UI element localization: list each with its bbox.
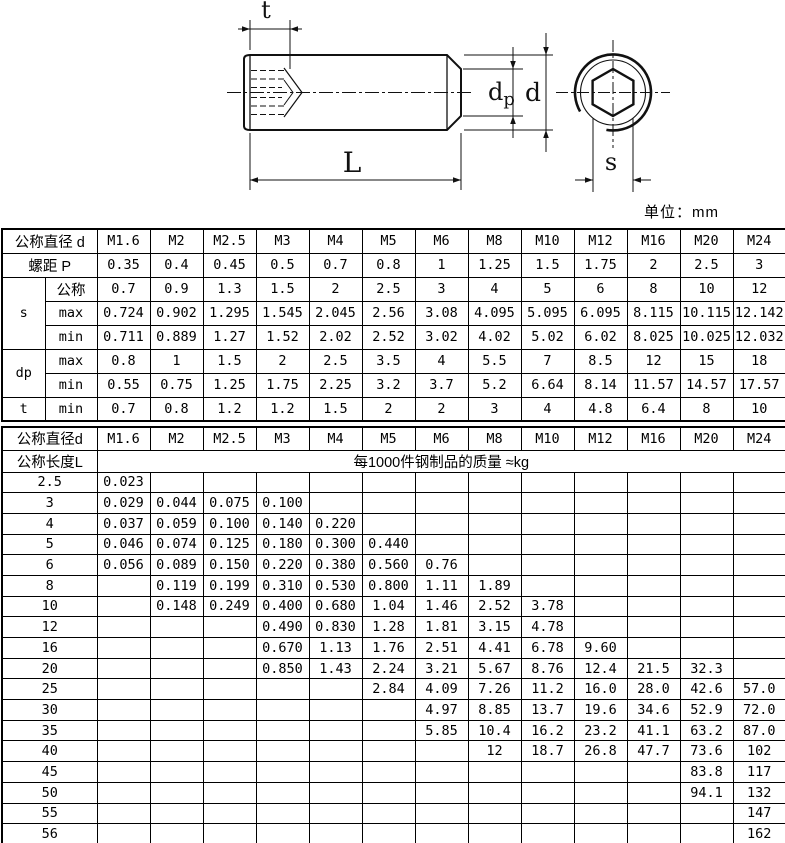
length-cell: 10 [2, 596, 97, 617]
value-cell: 8.14 [574, 373, 627, 397]
weight-cell [415, 803, 468, 824]
value-cell: 0.902 [150, 301, 203, 325]
weight-cell [680, 638, 733, 659]
sub-label: min [45, 373, 97, 397]
weight-cell [733, 638, 785, 659]
weight-cell: 0.059 [150, 513, 203, 534]
weight-cell [203, 617, 256, 638]
value-cell: 1.27 [203, 325, 256, 349]
value-cell: 1.545 [256, 301, 309, 325]
length-column-label: 公称长度L [2, 450, 97, 472]
value-cell: 1.75 [256, 373, 309, 397]
value-cell: 6.095 [574, 301, 627, 325]
weight-cell [97, 762, 150, 783]
weight-cell: 11.2 [521, 679, 574, 700]
value-cell: 2.25 [309, 373, 362, 397]
value-cell: 0.724 [97, 301, 150, 325]
weight-cell [574, 493, 627, 514]
weight-cell: 4.78 [521, 617, 574, 638]
value-cell: M5 [362, 229, 415, 253]
value-cell: 2 [627, 253, 680, 277]
dim-label-dp: dp [488, 78, 515, 110]
value-cell: M8 [468, 229, 521, 253]
value-cell: 2.5 [309, 349, 362, 373]
value-cell: 8.025 [627, 325, 680, 349]
weight-cell [97, 658, 150, 679]
spec-s-max-row: max 0.7240.9021.2951.5452.0452.563.084.0… [2, 301, 785, 325]
weight-cell [97, 782, 150, 803]
weight-cell [256, 700, 309, 721]
weight-cell: 162 [733, 824, 785, 843]
weight-cell [309, 472, 362, 493]
weight-cell [150, 700, 203, 721]
length-cell: 4 [2, 513, 97, 534]
value-cell: 4.02 [468, 325, 521, 349]
weight-cell [574, 762, 627, 783]
weight-cell: 0.300 [309, 534, 362, 555]
weight-cell [97, 700, 150, 721]
weight-cell: 2.24 [362, 658, 415, 679]
value-cell: 0.7 [97, 277, 150, 301]
value-cell: 2.52 [362, 325, 415, 349]
value-cell: 2.5 [362, 277, 415, 301]
weight-cell [627, 762, 680, 783]
weight-cell [733, 575, 785, 596]
value-cell: 8.115 [627, 301, 680, 325]
weight-cell: 26.8 [574, 741, 627, 762]
length-cell: 2.5 [2, 472, 97, 493]
dim-label-d: d [525, 78, 541, 107]
weight-cell: 1.76 [362, 638, 415, 659]
value-cell: 0.8 [97, 349, 150, 373]
value-cell: M12 [574, 229, 627, 253]
value-cell: 1.5 [203, 349, 256, 373]
weight-cell [521, 782, 574, 803]
weight-cell [309, 720, 362, 741]
value-cell: 2.56 [362, 301, 415, 325]
weight-cell [680, 803, 733, 824]
weight-row: 30.0290.0440.0750.100 [2, 493, 785, 514]
spec-s-min-row: min 0.7110.8891.271.522.022.523.024.025.… [2, 325, 785, 349]
weight-cell [574, 513, 627, 534]
value-cell: 5.2 [468, 373, 521, 397]
weight-cell [203, 679, 256, 700]
weight-cell [97, 824, 150, 843]
value-cell: 0.889 [150, 325, 203, 349]
weight-row: 56162 [2, 824, 785, 843]
weight-cell: 3.78 [521, 596, 574, 617]
weight-cell [627, 638, 680, 659]
spec-table: 公称直径 d M1.6M2M2.5M3M4M5M6M8M10M12M16M20M… [1, 228, 785, 422]
weight-cell [468, 472, 521, 493]
spec-dp-min-row: min 0.550.751.251.752.253.23.75.26.648.1… [2, 373, 785, 397]
weight-cell [627, 824, 680, 843]
weight-cell: 0.074 [150, 534, 203, 555]
weight-cell: 23.2 [574, 720, 627, 741]
weight-cell: 147 [733, 803, 785, 824]
weight-cell [680, 534, 733, 555]
weight-cell: 0.119 [150, 575, 203, 596]
weight-cell: 0.560 [362, 555, 415, 576]
value-cell: M2.5 [203, 427, 256, 450]
weight-row: 100.1480.2490.4000.6801.041.462.523.78 [2, 596, 785, 617]
weight-cell [150, 679, 203, 700]
weight-cell: 42.6 [680, 679, 733, 700]
value-cell: M3 [256, 427, 309, 450]
weight-cell: 0.100 [203, 513, 256, 534]
weight-cell [521, 575, 574, 596]
weight-cell [362, 493, 415, 514]
value-cell: 4 [521, 397, 574, 421]
value-cell: 0.45 [203, 253, 256, 277]
weight-cell [468, 803, 521, 824]
weight-cell [203, 472, 256, 493]
value-cell: M20 [680, 427, 733, 450]
weight-cell: 0.400 [256, 596, 309, 617]
weight-cell: 0.100 [256, 493, 309, 514]
length-cell: 25 [2, 679, 97, 700]
length-cell: 35 [2, 720, 97, 741]
value-cell: M24 [733, 427, 785, 450]
spec-s-nominal-row: s 公称 0.70.91.31.522.5345681012 [2, 277, 785, 301]
weight-cell: 1.46 [415, 596, 468, 617]
weight-cell [521, 803, 574, 824]
weight-cell [521, 472, 574, 493]
weight-cell: 16.2 [521, 720, 574, 741]
value-cell: 5 [521, 277, 574, 301]
value-cell: 10 [680, 277, 733, 301]
weight-cell: 2.52 [468, 596, 521, 617]
value-cell: M10 [521, 427, 574, 450]
weight-cell [733, 596, 785, 617]
weight-cell [733, 555, 785, 576]
weight-row: 80.1190.1990.3100.5300.8001.111.89 [2, 575, 785, 596]
group-label-s: s [2, 277, 45, 349]
value-cell: 1.3 [203, 277, 256, 301]
weight-cell [574, 803, 627, 824]
weight-cell [415, 782, 468, 803]
value-cell: 4 [415, 349, 468, 373]
weight-cell [468, 513, 521, 534]
weight-cell: 57.0 [733, 679, 785, 700]
weight-cell [203, 700, 256, 721]
weight-cell: 2.51 [415, 638, 468, 659]
length-cell: 3 [2, 493, 97, 514]
value-cell: 0.7 [309, 253, 362, 277]
weight-cell: 21.5 [627, 658, 680, 679]
weight-cell [256, 679, 309, 700]
weight-cell [362, 513, 415, 534]
weight-cell: 0.220 [256, 555, 309, 576]
sub-label: min [45, 325, 97, 349]
weight-cell [574, 575, 627, 596]
value-cell: M20 [680, 229, 733, 253]
weight-cell [362, 762, 415, 783]
weight-cell [627, 575, 680, 596]
value-cell: 0.8 [150, 397, 203, 421]
weight-cell [627, 513, 680, 534]
weight-cell [680, 617, 733, 638]
weight-cell: 3.21 [415, 658, 468, 679]
value-cell: 0.9 [150, 277, 203, 301]
weight-cell [362, 700, 415, 721]
value-cell: 12.142 [733, 301, 785, 325]
weight-cell [97, 596, 150, 617]
length-cell: 5 [2, 534, 97, 555]
weight-cell [468, 824, 521, 843]
weight-cell [521, 824, 574, 843]
weight-cell [521, 762, 574, 783]
row-label: 公称直径d [2, 427, 97, 450]
spec-pitch-row: 螺距 P 0.350.40.450.50.70.811.251.51.7522.… [2, 253, 785, 277]
weight-cell [256, 824, 309, 843]
weight-row: 55147 [2, 803, 785, 824]
weight-cell [97, 741, 150, 762]
value-cell: M2 [150, 229, 203, 253]
weight-cell [256, 803, 309, 824]
weight-cell [627, 555, 680, 576]
group-label-t: t [2, 397, 45, 421]
value-cell: 1.5 [309, 397, 362, 421]
weight-cell [309, 782, 362, 803]
value-cell: 0.5 [256, 253, 309, 277]
weight-cell: 0.199 [203, 575, 256, 596]
weight-cell: 8.85 [468, 700, 521, 721]
weight-row: 50.0460.0740.1250.1800.3000.440 [2, 534, 785, 555]
weight-row: 120.4900.8301.281.813.154.78 [2, 617, 785, 638]
weight-cell: 5.85 [415, 720, 468, 741]
length-cell: 20 [2, 658, 97, 679]
weight-cell [733, 658, 785, 679]
weight-cell [97, 803, 150, 824]
value-cell: 0.75 [150, 373, 203, 397]
weight-cell [415, 472, 468, 493]
weight-cell: 0.075 [203, 493, 256, 514]
weight-cell [627, 617, 680, 638]
weight-rows-body: 2.50.02330.0290.0440.0750.10040.0370.059… [2, 472, 785, 843]
value-cell: 4.095 [468, 301, 521, 325]
weight-cell: 12.4 [574, 658, 627, 679]
value-cell: 2.045 [309, 301, 362, 325]
weight-cell: 10.4 [468, 720, 521, 741]
weight-cell [468, 762, 521, 783]
weight-cell: 32.3 [680, 658, 733, 679]
spec-t-min-row: t min 0.70.81.21.21.522344.86.4810 [2, 397, 785, 421]
value-cell: 2.02 [309, 325, 362, 349]
value-cell: 1 [415, 253, 468, 277]
weight-row: 304.978.8513.719.634.652.972.0 [2, 700, 785, 721]
weight-cell [256, 472, 309, 493]
value-cell: 4.8 [574, 397, 627, 421]
weight-cell: 8.76 [521, 658, 574, 679]
weight-row: 355.8510.416.223.241.163.287.0 [2, 720, 785, 741]
weight-cell: 73.6 [680, 741, 733, 762]
weight-cell: 0.380 [309, 555, 362, 576]
value-cell: M6 [415, 427, 468, 450]
weight-cell [733, 472, 785, 493]
weight-row: 252.844.097.2611.216.028.042.657.0 [2, 679, 785, 700]
length-cell: 50 [2, 782, 97, 803]
weight-cell: 0.680 [309, 596, 362, 617]
weight-cell: 47.7 [627, 741, 680, 762]
value-cell: 12 [733, 277, 785, 301]
row-label: 螺距 P [2, 253, 97, 277]
weight-cell: 4.97 [415, 700, 468, 721]
weight-cell [150, 658, 203, 679]
length-cell: 30 [2, 700, 97, 721]
weight-cell [574, 617, 627, 638]
weight-cell [150, 617, 203, 638]
weight-cell [203, 762, 256, 783]
weight-cell [256, 720, 309, 741]
sub-label: max [45, 349, 97, 373]
value-cell: 17.57 [733, 373, 785, 397]
weight-cell [415, 493, 468, 514]
weight-cell [150, 720, 203, 741]
value-cell: 3.08 [415, 301, 468, 325]
weight-cell [150, 782, 203, 803]
value-cell: 8.5 [574, 349, 627, 373]
weight-cell: 7.26 [468, 679, 521, 700]
value-cell: 0.7 [97, 397, 150, 421]
weight-cell: 1.13 [309, 638, 362, 659]
value-cell: 10 [733, 397, 785, 421]
weight-cell: 9.60 [574, 638, 627, 659]
value-cell: M1.6 [97, 229, 150, 253]
weight-cell [97, 638, 150, 659]
length-cell: 45 [2, 762, 97, 783]
weight-cell: 0.125 [203, 534, 256, 555]
weight-cell: 0.440 [362, 534, 415, 555]
weight-cell: 0.830 [309, 617, 362, 638]
weight-table: 公称直径d M1.6M2M2.5M3M4M5M6M8M10M12M16M20M2… [1, 426, 785, 843]
value-cell: M8 [468, 427, 521, 450]
value-cell: 3.2 [362, 373, 415, 397]
value-cell: 12 [627, 349, 680, 373]
value-cell: 3.5 [362, 349, 415, 373]
weight-cell [574, 534, 627, 555]
weight-row: 160.6701.131.762.514.416.789.60 [2, 638, 785, 659]
weight-row: 40.0370.0590.1000.1400.220 [2, 513, 785, 534]
weight-cell: 94.1 [680, 782, 733, 803]
value-cell: 0.8 [362, 253, 415, 277]
weight-cell: 1.81 [415, 617, 468, 638]
value-cell: M6 [415, 229, 468, 253]
value-cell: 1 [150, 349, 203, 373]
weight-cell: 19.6 [574, 700, 627, 721]
value-cell: M4 [309, 427, 362, 450]
value-cell: M4 [309, 229, 362, 253]
value-cell: 7 [521, 349, 574, 373]
weight-cell [521, 493, 574, 514]
weight-cell [362, 741, 415, 762]
weight-cell [415, 824, 468, 843]
weight-cell [362, 720, 415, 741]
weight-cell [733, 513, 785, 534]
weight-cell: 87.0 [733, 720, 785, 741]
weight-cell [415, 741, 468, 762]
weight-row: 4583.8117 [2, 762, 785, 783]
value-cell: 14.57 [680, 373, 733, 397]
weight-cell [203, 658, 256, 679]
weight-cell: 0.023 [97, 472, 150, 493]
value-cell: 3 [733, 253, 785, 277]
length-cell: 55 [2, 803, 97, 824]
weight-cell: 0.140 [256, 513, 309, 534]
weight-cell: 52.9 [680, 700, 733, 721]
technical-drawing: t L dp d s [0, 0, 785, 222]
weight-cell [627, 596, 680, 617]
weight-cell: 0.530 [309, 575, 362, 596]
value-cell: 11.57 [627, 373, 680, 397]
weight-cell [203, 638, 256, 659]
weight-cell [521, 555, 574, 576]
weight-cell: 0.670 [256, 638, 309, 659]
value-cell: 2 [309, 277, 362, 301]
weight-cell [415, 513, 468, 534]
weight-cell [150, 762, 203, 783]
weight-cell [468, 782, 521, 803]
weight-cell: 34.6 [627, 700, 680, 721]
value-cell: M10 [521, 229, 574, 253]
weight-cell: 0.056 [97, 555, 150, 576]
weight-cell [680, 513, 733, 534]
value-cell: 5.095 [521, 301, 574, 325]
weight-cell [627, 803, 680, 824]
value-cell: 5.5 [468, 349, 521, 373]
value-cell: 0.711 [97, 325, 150, 349]
weight-cell: 12 [468, 741, 521, 762]
weight-cell [574, 824, 627, 843]
value-cell: 10.115 [680, 301, 733, 325]
value-cell: 1.52 [256, 325, 309, 349]
value-cell: 8 [680, 397, 733, 421]
value-cell: M16 [627, 229, 680, 253]
value-cell: 10.025 [680, 325, 733, 349]
weight-cell: 2.84 [362, 679, 415, 700]
weight-cell: 28.0 [627, 679, 680, 700]
weight-cell [627, 493, 680, 514]
weight-cell [203, 803, 256, 824]
value-cell: 6.64 [521, 373, 574, 397]
sub-label: min [45, 397, 97, 421]
length-cell: 8 [2, 575, 97, 596]
value-cell: 2.5 [680, 253, 733, 277]
weight-row: 5094.1132 [2, 782, 785, 803]
value-cell: 3.02 [415, 325, 468, 349]
weight-diameter-row: 公称直径d M1.6M2M2.5M3M4M5M6M8M10M12M16M20M2… [2, 427, 785, 450]
weight-cell [680, 555, 733, 576]
value-cell: M12 [574, 427, 627, 450]
weight-cell: 1.04 [362, 596, 415, 617]
value-cell: 0.35 [97, 253, 150, 277]
value-cell: 1.2 [256, 397, 309, 421]
weight-cell [309, 762, 362, 783]
weight-cell [203, 741, 256, 762]
weight-cell [468, 534, 521, 555]
weight-cell: 0.089 [150, 555, 203, 576]
weight-row: 2.50.023 [2, 472, 785, 493]
value-cell: 1.295 [203, 301, 256, 325]
weight-cell: 1.43 [309, 658, 362, 679]
weight-cell [627, 534, 680, 555]
value-cell: 8 [627, 277, 680, 301]
weight-cell [203, 720, 256, 741]
value-cell: 6.02 [574, 325, 627, 349]
weight-cell [362, 472, 415, 493]
weight-cell [256, 782, 309, 803]
weight-row: 401218.726.847.773.6102 [2, 741, 785, 762]
